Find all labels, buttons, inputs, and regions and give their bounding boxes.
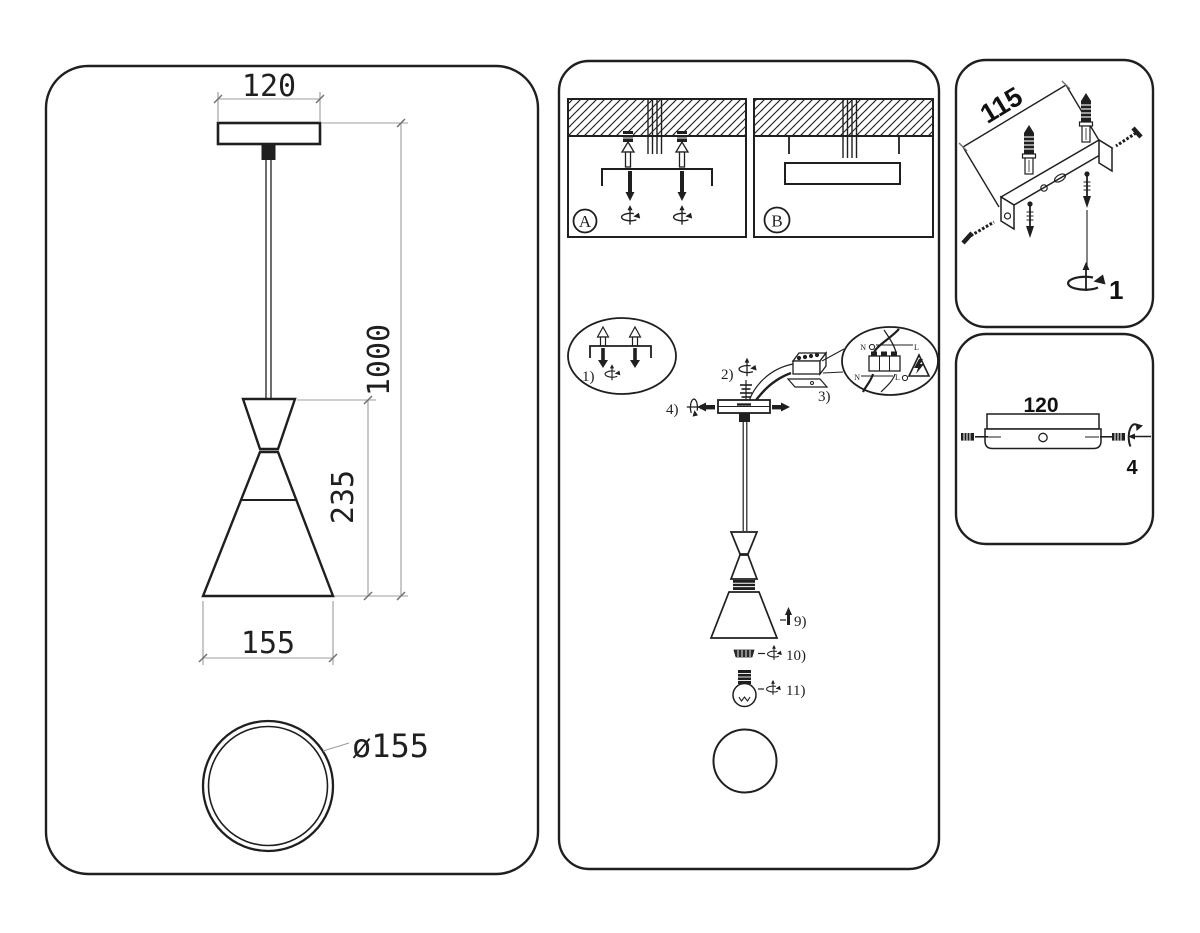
canopy-b xyxy=(785,163,900,184)
wall-anchor-right xyxy=(1080,93,1093,142)
step-2-label: 2) xyxy=(721,367,734,383)
diagram-canvas: 120 1000 235 155 xyxy=(0,0,1200,933)
bulb-glass xyxy=(733,684,756,707)
mounting-option-b: B xyxy=(754,99,933,237)
panel-canopy-fixing: 120 4 xyxy=(956,334,1153,544)
canopy xyxy=(218,123,320,144)
panel-front-view: 120 1000 235 155 xyxy=(46,66,538,874)
shade-bottom-view xyxy=(203,721,333,851)
dim-label-235: 235 xyxy=(326,470,361,524)
label-b: B xyxy=(771,212,782,231)
step-1-number: 1 xyxy=(1109,275,1123,305)
label-a: A xyxy=(579,212,592,231)
wire-label-n-top: N xyxy=(860,343,866,352)
wire-label-n-bottom: N xyxy=(854,373,860,382)
cord-grip xyxy=(262,144,276,160)
step-4-number: 4 xyxy=(1126,457,1138,479)
cord-grip-2 xyxy=(739,413,750,422)
wire-label-l-bottom: L xyxy=(895,373,900,382)
step-11-label: 11) xyxy=(786,683,805,699)
panel-assembly-steps: A B xyxy=(559,61,939,869)
step-1-callout: 1) xyxy=(568,318,676,394)
dim-label-1000: 1000 xyxy=(362,324,397,396)
wiring-detail-callout: N L N L xyxy=(842,327,938,395)
dim-label-diameter: ø155 xyxy=(352,727,429,765)
canopy-bar-3d xyxy=(985,414,1101,449)
mounting-option-a: A xyxy=(568,99,746,237)
step-4-label: 4) xyxy=(666,402,679,418)
step-10-label: 10) xyxy=(786,648,806,664)
panel-bracket-install: 115 xyxy=(956,60,1153,327)
step-1-label: 1) xyxy=(582,369,595,385)
lamp-socket xyxy=(733,580,755,590)
shade-bottom-view-small xyxy=(714,730,777,793)
step-3-label: 3) xyxy=(818,389,831,405)
instruction-sheet: 120 1000 235 155 xyxy=(0,0,1200,933)
dim-label-155: 155 xyxy=(241,626,295,661)
dim-label-120: 120 xyxy=(242,69,296,104)
wall-anchor-left xyxy=(1023,125,1036,174)
step-9-label: 9) xyxy=(794,614,807,630)
wire-label-l-top: L xyxy=(914,343,919,352)
